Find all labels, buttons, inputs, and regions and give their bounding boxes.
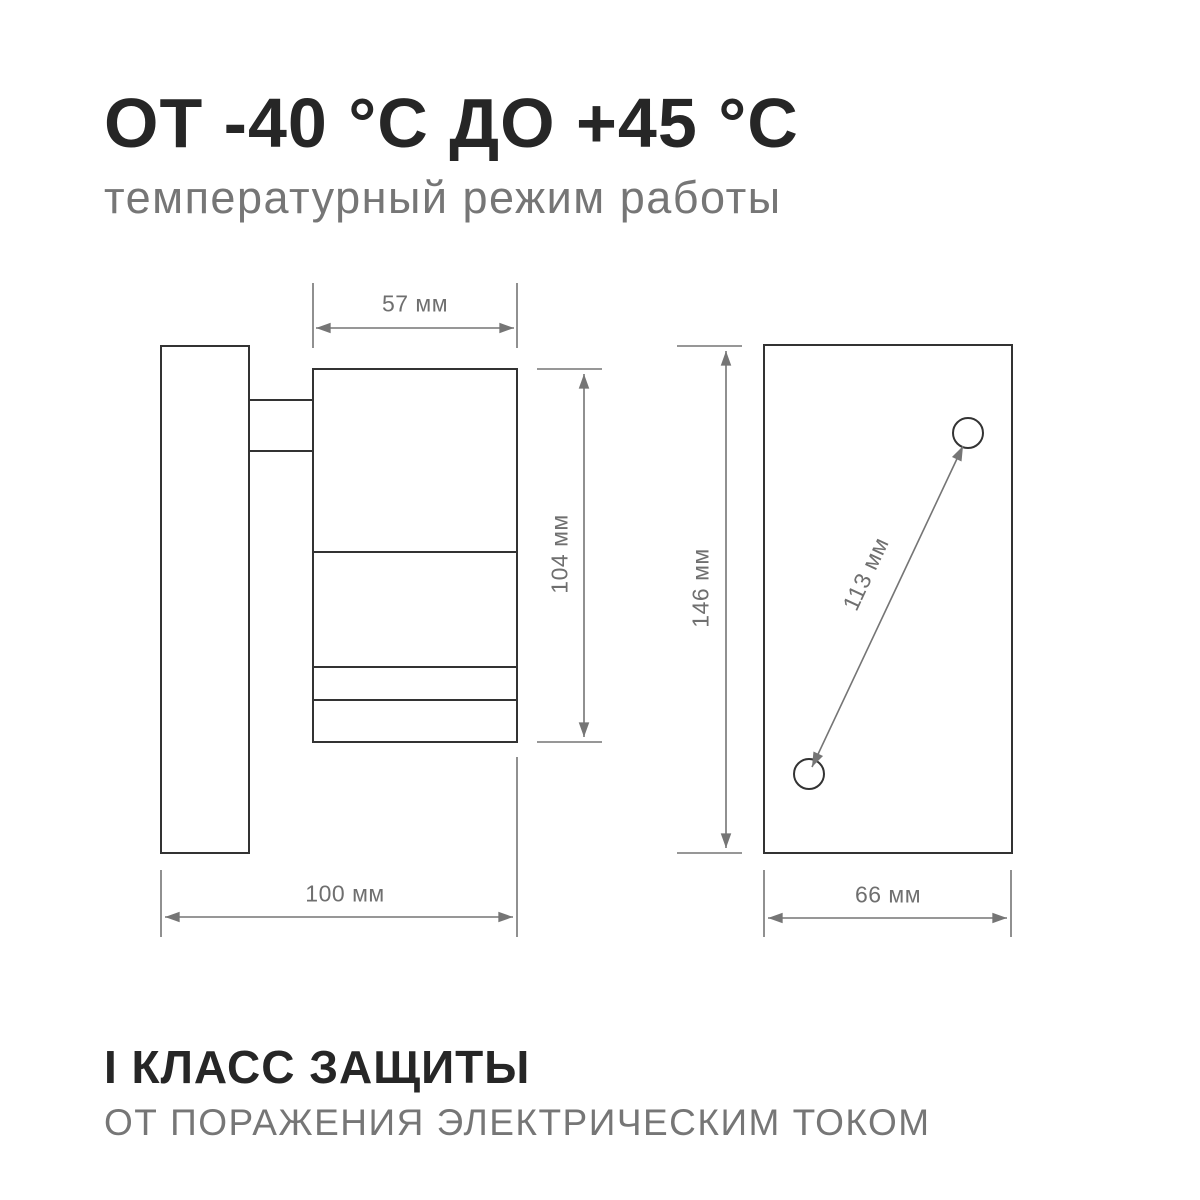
- wall-plate-outline: [161, 346, 249, 853]
- dim-label-plate-height: 146 мм: [688, 548, 715, 627]
- footer: I КЛАСС ЗАЩИТЫ ОТ ПОРАЖЕНИЯ ЭЛЕКТРИЧЕСКИ…: [104, 1044, 931, 1144]
- dim-label-plate-width: 66 мм: [855, 882, 921, 909]
- protection-class-title: I КЛАСС ЗАЩИТЫ: [104, 1044, 931, 1090]
- page-root: ОТ -40 °С ДО +45 °С температурный режим …: [0, 0, 1200, 1200]
- dimension-lines: [161, 283, 1011, 937]
- back-view: [764, 345, 1012, 853]
- mounting-plate-outline: [764, 345, 1012, 853]
- dim-line-113: [812, 446, 963, 767]
- mounting-hole-bottom: [794, 759, 824, 789]
- dimension-drawing: [0, 0, 1200, 1200]
- protection-class-subtitle: ОТ ПОРАЖЕНИЯ ЭЛЕКТРИЧЕСКИМ ТОКОМ: [104, 1102, 931, 1144]
- dim-label-body-height: 104 мм: [547, 514, 574, 593]
- dim-label-body-width: 57 мм: [382, 291, 448, 318]
- mounting-hole-top: [953, 418, 983, 448]
- dim-label-total-depth: 100 мм: [305, 881, 384, 908]
- lamp-body-outline: [313, 369, 517, 742]
- side-view: [161, 346, 517, 853]
